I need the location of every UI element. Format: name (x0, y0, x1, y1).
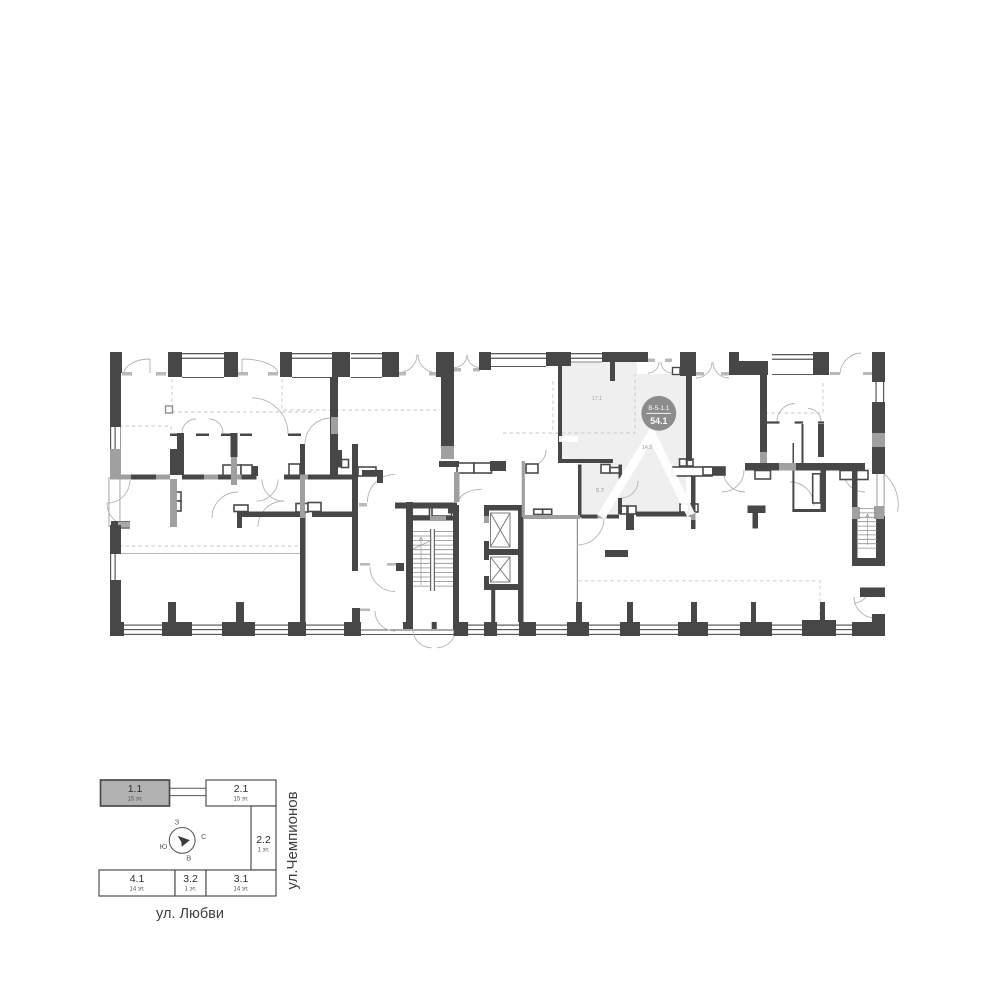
svg-text:5.7: 5.7 (596, 488, 604, 494)
svg-text:1.1: 1.1 (128, 783, 143, 795)
svg-text:В-5-1.1: В-5-1.1 (648, 405, 669, 412)
svg-text:С: С (201, 832, 207, 841)
svg-text:54.1: 54.1 (650, 416, 667, 426)
svg-text:2.2: 2.2 (256, 834, 271, 846)
svg-text:3.2: 3.2 (183, 873, 198, 885)
svg-text:2.1: 2.1 (234, 783, 249, 795)
svg-text:15 эт.: 15 эт. (233, 797, 248, 803)
svg-text:В: В (186, 854, 191, 863)
svg-text:17.1: 17.1 (592, 396, 602, 402)
svg-text:14 эт.: 14 эт. (129, 887, 144, 893)
svg-text:4.1: 4.1 (130, 873, 145, 885)
svg-text:15 эт.: 15 эт. (127, 797, 142, 803)
svg-text:14.3: 14.3 (642, 445, 652, 451)
svg-text:Ю: Ю (160, 842, 168, 851)
svg-text:3.1: 3.1 (234, 873, 249, 885)
svg-text:ул.Чемпионов: ул.Чемпионов (284, 791, 301, 889)
svg-text:З: З (175, 818, 180, 827)
svg-text:ул. Любви: ул. Любви (156, 906, 224, 922)
svg-text:1 эт.: 1 эт. (185, 887, 197, 893)
svg-text:14 эт.: 14 эт. (233, 887, 248, 893)
svg-text:1 эт.: 1 эт. (258, 848, 270, 854)
